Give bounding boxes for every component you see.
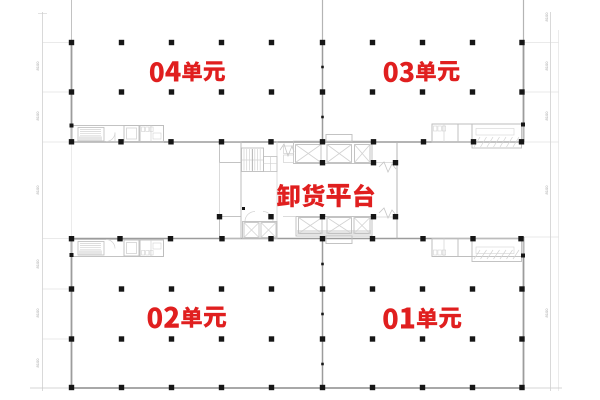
svg-text:8100: 8100 <box>35 61 40 71</box>
svg-text:8100: 8100 <box>544 61 549 71</box>
svg-text:8100: 8100 <box>544 111 549 121</box>
svg-text:8100: 8100 <box>35 358 40 368</box>
svg-text:8100: 8100 <box>544 185 549 195</box>
svg-text:8100: 8100 <box>35 111 40 121</box>
svg-text:8100: 8100 <box>35 308 40 318</box>
svg-text:8100: 8100 <box>544 12 549 22</box>
svg-text:8100: 8100 <box>35 185 40 195</box>
svg-text:8100: 8100 <box>35 259 40 269</box>
svg-text:8100: 8100 <box>544 308 549 318</box>
